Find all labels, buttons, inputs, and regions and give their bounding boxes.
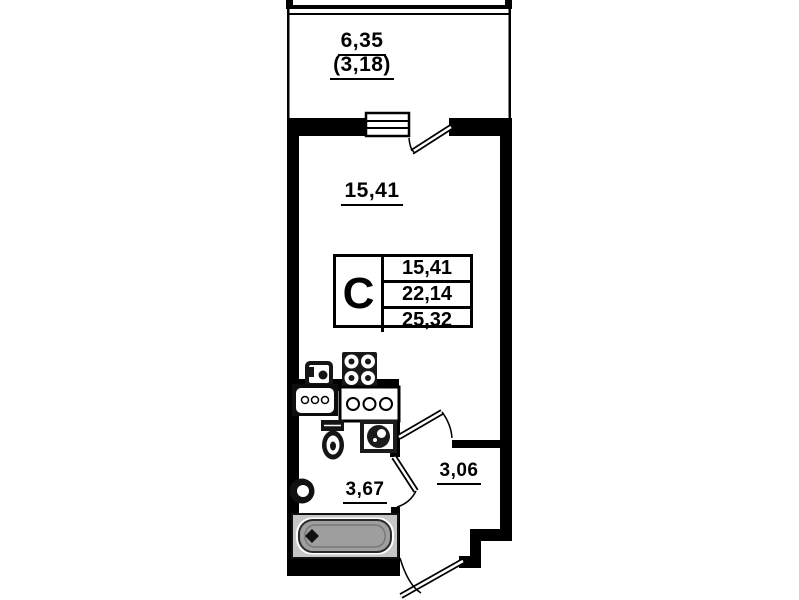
entry-door xyxy=(400,558,463,596)
counter-hole xyxy=(347,398,359,410)
kitchen-sink-faucet xyxy=(309,367,314,377)
wall-right xyxy=(500,118,512,541)
bathtub xyxy=(292,514,398,558)
kitchen-sink-drain xyxy=(319,371,328,380)
wall-left xyxy=(287,118,299,572)
balcony-coefficient-value: (3,18) xyxy=(330,53,394,80)
balcony-glazing-inner xyxy=(289,13,509,15)
wall-room-bottom-right xyxy=(452,440,512,448)
balcony-door xyxy=(409,127,451,152)
balcony-door-leaf-inner xyxy=(412,127,451,152)
area-legend-table: С 15,41 22,14 25,32 xyxy=(333,254,473,328)
balcony-area-label: 6,35 xyxy=(322,29,402,56)
stove-burner-center xyxy=(349,359,355,365)
balcony-coefficient-label: (3,18) xyxy=(316,53,408,80)
hallway-door xyxy=(399,412,452,438)
toilet xyxy=(321,420,344,460)
balcony-glazing-outer xyxy=(287,5,511,9)
bathroom-area-value: 3,67 xyxy=(343,479,388,504)
bathroom-door-swing-arc xyxy=(397,491,416,507)
kitchen-sink xyxy=(305,361,333,387)
floor-plan: 6,35 (3,18) 15,41 3,67 3,06 С 15,41 22,1… xyxy=(0,0,799,600)
stove-burner-center xyxy=(349,375,355,381)
entry-door-leaf-inner xyxy=(401,561,463,596)
washing-machine-drum-dot xyxy=(373,438,377,442)
bathroom-sink-bowl xyxy=(297,485,309,497)
bathroom-door-leaf-inner xyxy=(394,457,416,491)
living-room-area-value: 15,41 xyxy=(341,179,402,206)
bathroom-door xyxy=(394,457,416,507)
vanity-hole xyxy=(322,397,329,404)
legend-total-area: 22,14 xyxy=(384,283,470,309)
stove-burner-center xyxy=(365,375,371,381)
vanity-hole xyxy=(302,397,309,404)
stove-burner-center xyxy=(365,359,371,365)
toilet-drain xyxy=(330,442,336,451)
legend-total-area-with-balcony: 25,32 xyxy=(384,309,470,332)
counter-hole xyxy=(364,398,376,410)
counter-unit-large xyxy=(340,387,399,421)
hallway-area-value: 3,06 xyxy=(437,460,482,485)
bathroom-area-label: 3,67 xyxy=(334,479,396,504)
washing-machine xyxy=(360,420,397,453)
hallway-door-swing-arc xyxy=(442,412,452,438)
window xyxy=(366,113,409,136)
stove xyxy=(342,352,377,387)
apartment-type-letter: С xyxy=(336,257,384,332)
balcony-wall-left xyxy=(287,5,290,120)
counter-hole xyxy=(380,398,392,410)
window-frame xyxy=(366,113,409,136)
legend-living-area: 15,41 xyxy=(384,257,470,283)
vanity-unit-small xyxy=(292,384,338,416)
hallway-door-leaf-inner xyxy=(399,412,442,437)
balcony-wall-right xyxy=(509,5,512,120)
bathroom-sink xyxy=(290,479,315,504)
washing-machine-drum-swirl xyxy=(377,429,386,438)
hallway-area-label: 3,06 xyxy=(428,460,490,485)
balcony-area-value: 6,35 xyxy=(338,29,387,56)
living-room-area-label: 15,41 xyxy=(332,179,412,206)
vanity-hole xyxy=(312,397,319,404)
